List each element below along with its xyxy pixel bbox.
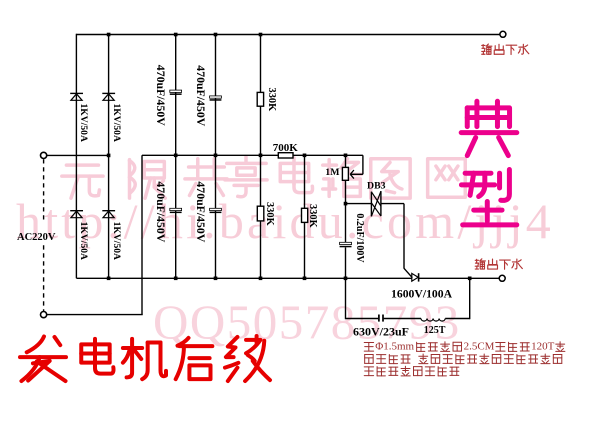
svg-text:1600V/100A: 1600V/100A: [391, 287, 453, 300]
svg-text:0.2uF/100V: 0.2uF/100V: [354, 213, 365, 263]
svg-text:470uF/450V: 470uF/450V: [194, 65, 208, 126]
svg-text:AC220V: AC220V: [17, 232, 56, 243]
svg-text:120T: 120T: [531, 341, 555, 353]
svg-text:1KV/50A: 1KV/50A: [78, 222, 89, 260]
svg-text:QQ505785793: QQ505785793: [153, 295, 461, 350]
svg-text:330K: 330K: [307, 204, 318, 228]
svg-text:1M: 1M: [325, 167, 339, 178]
svg-text:2.5CM: 2.5CM: [464, 341, 495, 353]
svg-text:630V/23uF: 630V/23uF: [353, 325, 409, 339]
svg-text:700K: 700K: [273, 142, 299, 154]
svg-text:470uF/450V: 470uF/450V: [154, 65, 168, 126]
svg-text:Φ1.5mm: Φ1.5mm: [375, 341, 414, 353]
svg-text:DB3: DB3: [367, 181, 386, 192]
svg-text:330K: 330K: [264, 202, 275, 226]
svg-text:1KV/50A: 1KV/50A: [111, 222, 122, 260]
svg-text:470uF/450V: 470uF/450V: [154, 181, 168, 242]
svg-text:125T: 125T: [424, 325, 446, 336]
svg-text:1KV/50A: 1KV/50A: [111, 104, 122, 142]
svg-text:http://hi.baidu.com/jjj4: http://hi.baidu.com/jjj4: [16, 193, 554, 249]
svg-text:470uF/450V: 470uF/450V: [194, 181, 208, 242]
svg-text:1KV/50A: 1KV/50A: [78, 104, 89, 142]
svg-text:330K: 330K: [266, 88, 277, 112]
